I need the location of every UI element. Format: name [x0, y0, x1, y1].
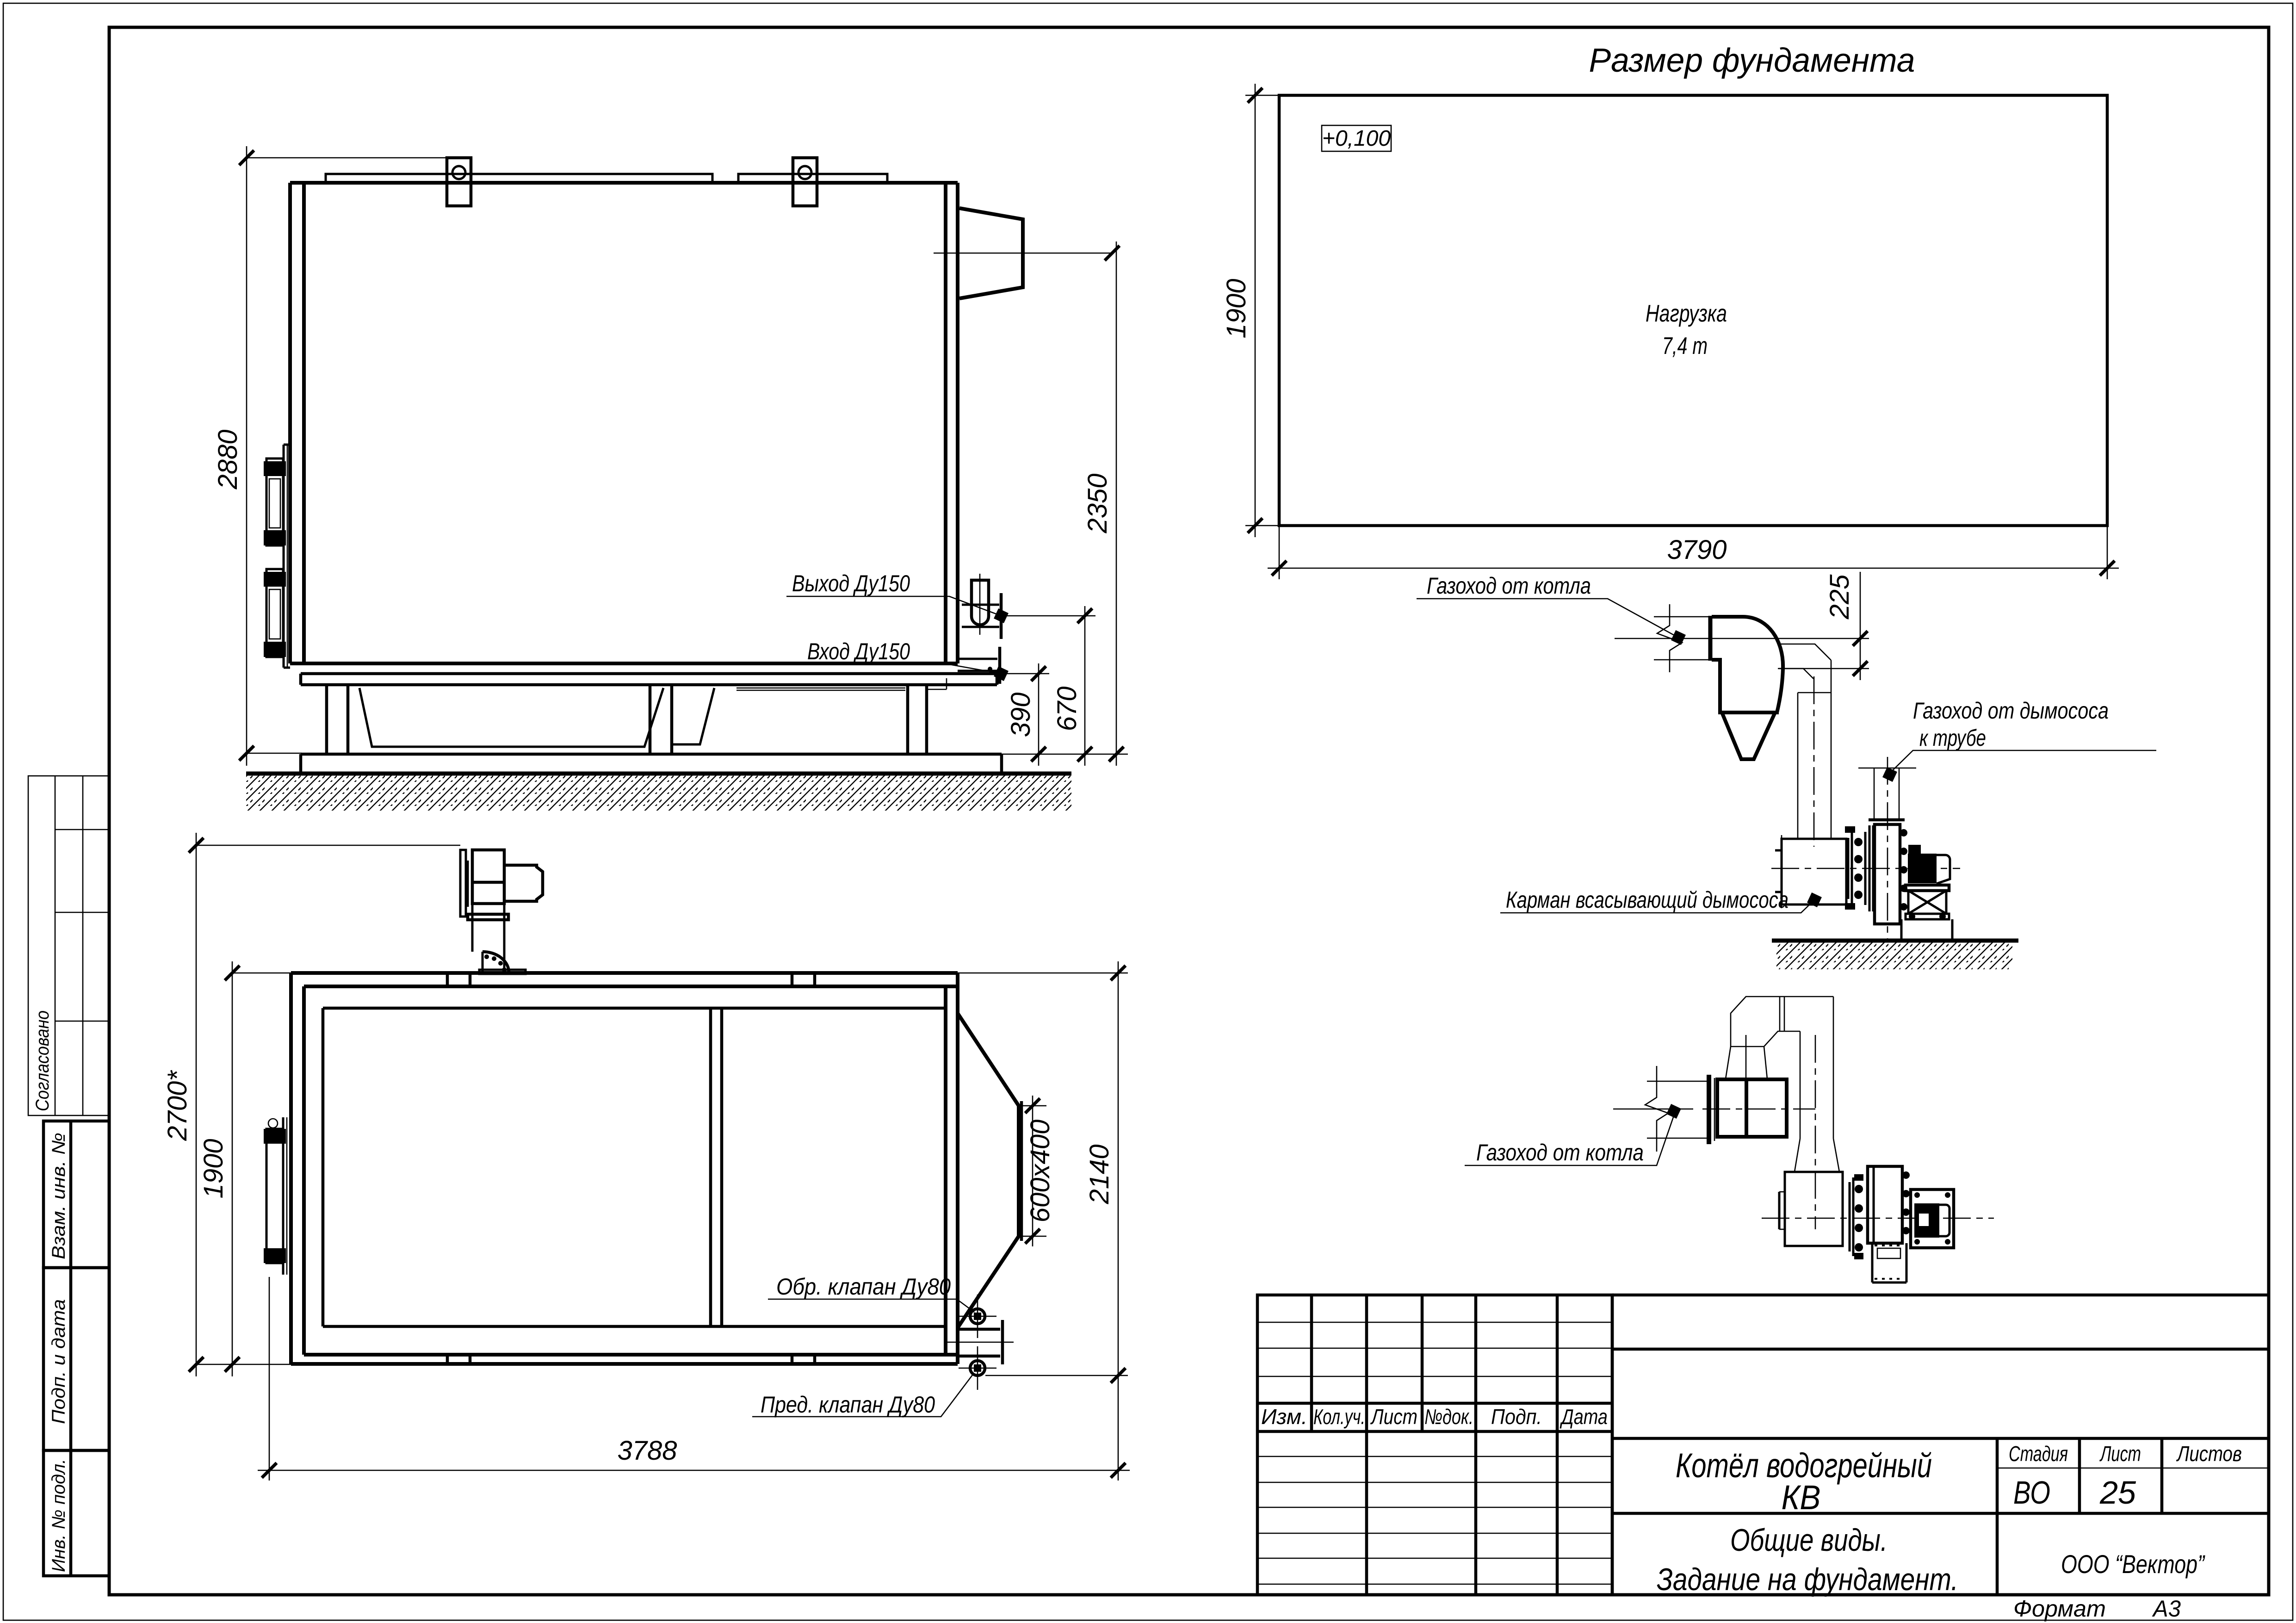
svg-text:Газоход от дымососа: Газоход от дымососа	[1913, 698, 2109, 724]
svg-text:Размер фундамента: Размер фундамента	[1589, 42, 1915, 79]
svg-text:Обр. клапан Ду80: Обр. клапан Ду80	[776, 1274, 951, 1300]
svg-text:№док.: №док.	[1424, 1405, 1473, 1429]
svg-text:Газоход от котла: Газоход от котла	[1476, 1140, 1644, 1165]
svg-text:Дата: Дата	[1560, 1405, 1608, 1429]
svg-text:Выход Ду150: Выход Ду150	[792, 570, 910, 596]
svg-text:Листов: Листов	[2176, 1442, 2242, 1466]
svg-text:Пред. клапан Ду80: Пред. клапан Ду80	[761, 1392, 935, 1418]
svg-text:Лист: Лист	[1370, 1405, 1417, 1429]
svg-text:7,4 т: 7,4 т	[1662, 333, 1708, 359]
svg-text:Стадия: Стадия	[2009, 1442, 2068, 1466]
svg-text:Вход Ду150: Вход Ду150	[807, 638, 910, 664]
svg-text:Газоход от котла: Газоход от котла	[1427, 573, 1591, 599]
svg-text:ВО: ВО	[2013, 1474, 2050, 1511]
svg-text:Подп.: Подп.	[1491, 1405, 1542, 1429]
svg-text:225: 225	[1825, 574, 1855, 620]
svg-text:3788: 3788	[617, 1436, 677, 1466]
svg-text:А3: А3	[2152, 1596, 2181, 1622]
svg-text:2700*: 2700*	[162, 1070, 192, 1141]
svg-text:Подп. и дата: Подп. и дата	[49, 1299, 69, 1424]
svg-text:Инв. № подл.: Инв. № подл.	[49, 1459, 69, 1572]
svg-text:1900: 1900	[1221, 279, 1251, 338]
svg-text:ООО “Вектор”: ООО “Вектор”	[2061, 1549, 2205, 1579]
svg-text:3790: 3790	[1667, 535, 1727, 565]
svg-text:2350: 2350	[1083, 473, 1113, 533]
svg-text:Взам. инв. №: Взам. инв. №	[49, 1133, 69, 1259]
svg-text:к трубе: к трубе	[1919, 725, 1986, 751]
svg-text:1900: 1900	[198, 1139, 229, 1198]
svg-text:Карман всасывающий дымососа: Карман всасывающий дымососа	[1506, 887, 1789, 913]
svg-text:600х400: 600х400	[1025, 1120, 1055, 1223]
svg-text:390: 390	[1006, 693, 1036, 737]
svg-text:Формат: Формат	[2013, 1596, 2106, 1622]
svg-text:Нагрузка: Нагрузка	[1646, 300, 1727, 327]
svg-text:Общие виды.: Общие виды.	[1730, 1523, 1888, 1558]
svg-text:2880: 2880	[213, 429, 243, 489]
svg-text:+0,100: +0,100	[1322, 126, 1391, 151]
svg-text:Кол.уч.: Кол.уч.	[1313, 1405, 1365, 1429]
svg-text:25: 25	[2099, 1474, 2136, 1511]
svg-text:Лист: Лист	[2099, 1442, 2141, 1466]
svg-text:2140: 2140	[1084, 1144, 1114, 1204]
svg-text:Согласовано: Согласовано	[32, 1010, 53, 1111]
svg-text:Задание на фундамент.: Задание на фундамент.	[1657, 1562, 1958, 1597]
svg-text:670: 670	[1052, 687, 1082, 731]
svg-text:Изм.: Изм.	[1261, 1405, 1307, 1429]
svg-text:КВ: КВ	[1782, 1478, 1821, 1517]
